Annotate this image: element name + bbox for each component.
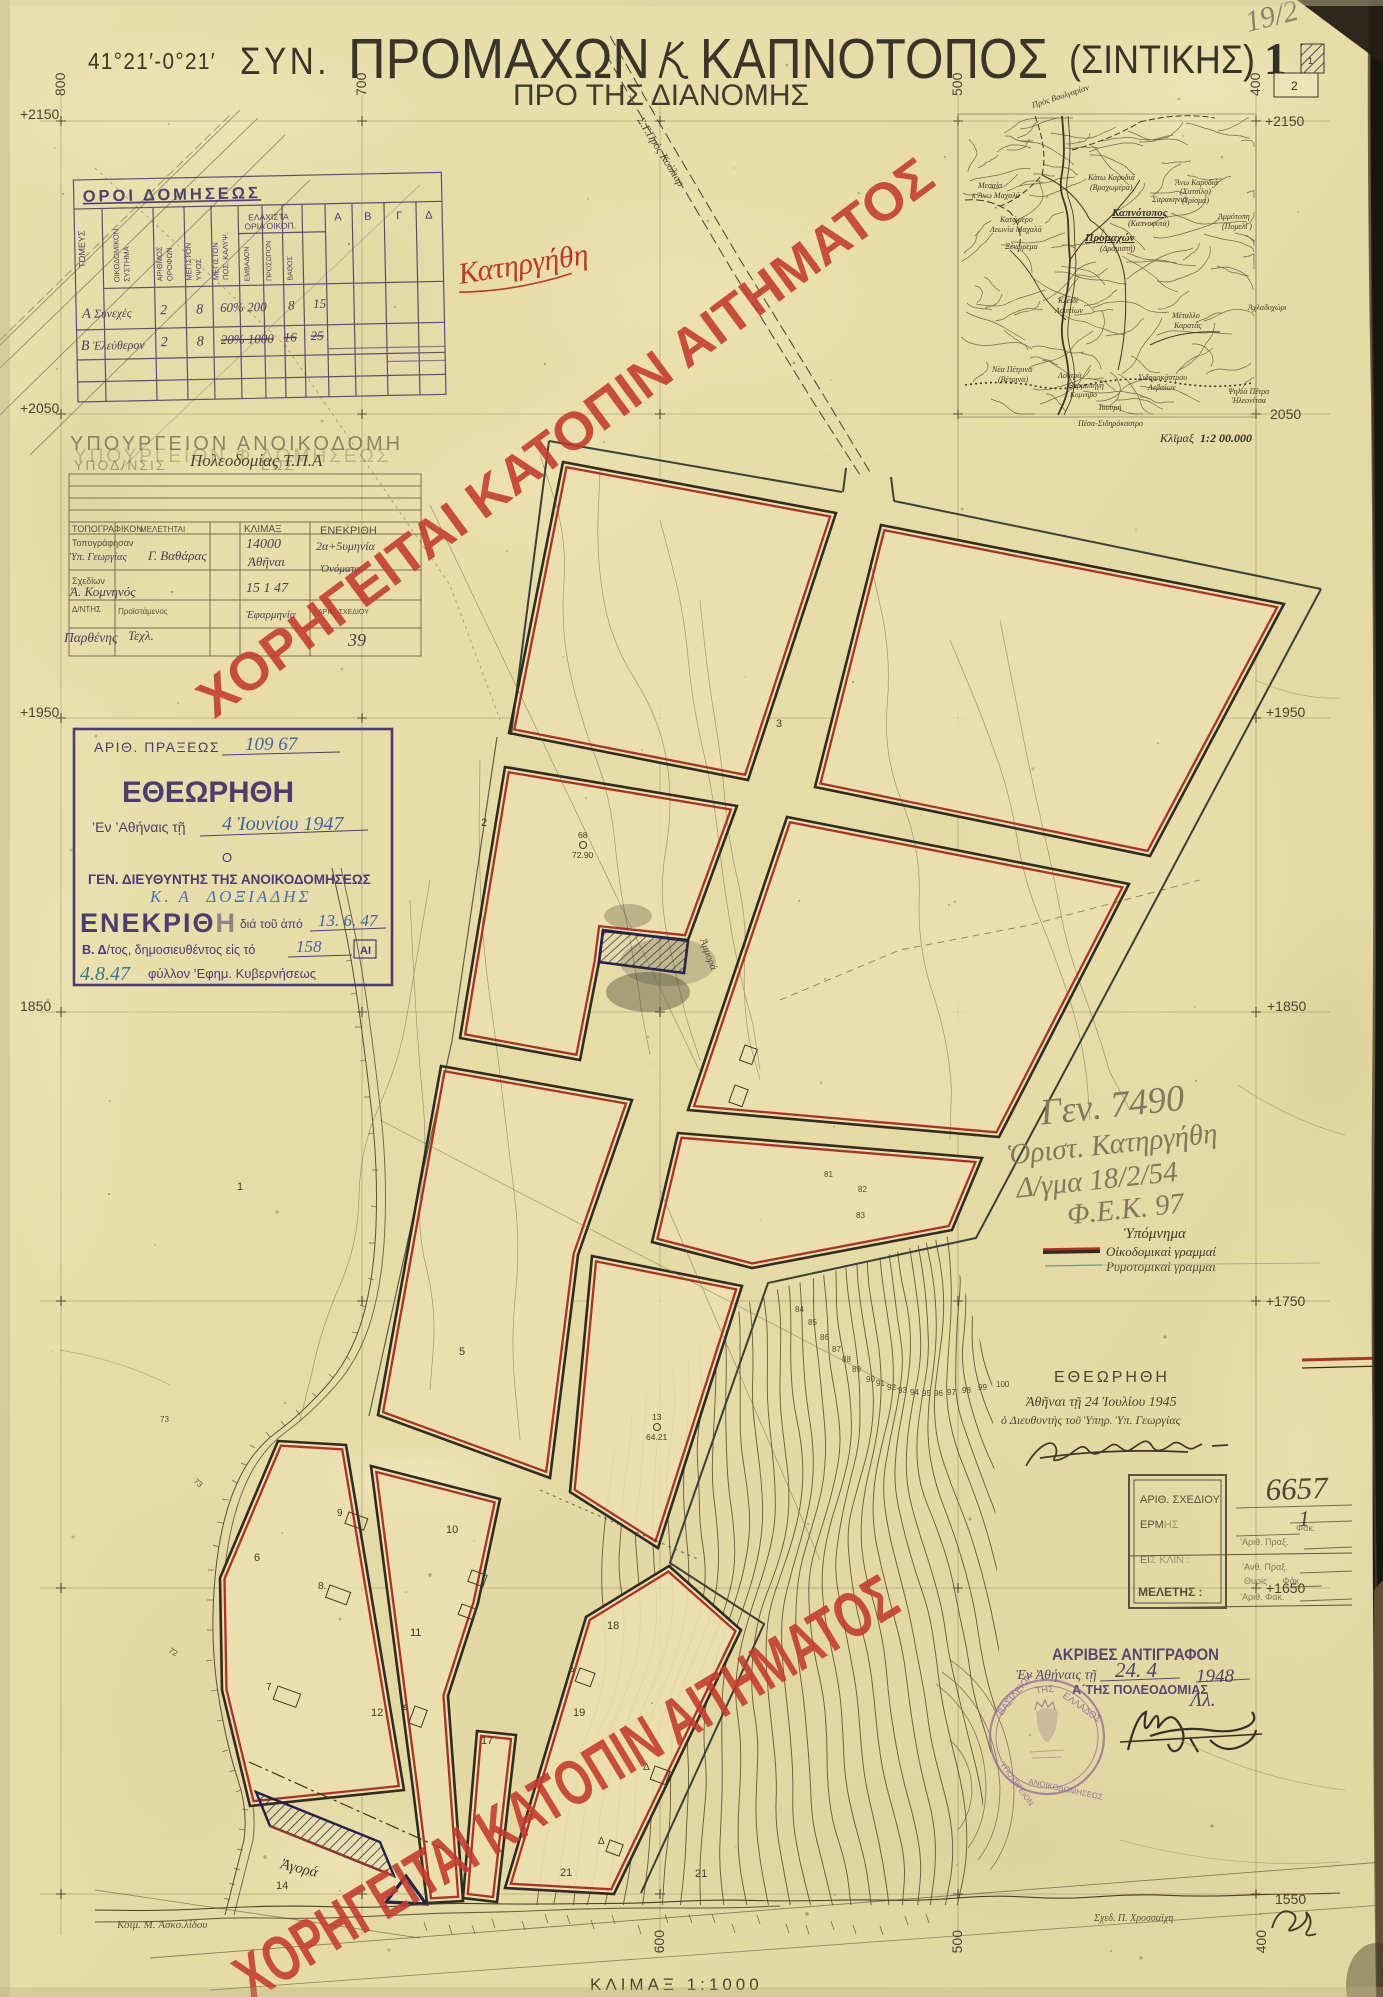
svg-text:21: 21: [695, 1868, 707, 1880]
svg-text:Μεσαία: Μεσαία: [977, 181, 1003, 190]
svg-text:98: 98: [962, 1386, 971, 1395]
svg-text:Δ/ΝΤΗΣ: Δ/ΝΤΗΣ: [72, 605, 101, 614]
svg-text:87: 87: [832, 1345, 841, 1354]
svg-text:Ρυμοτομικαὶ γραμμαι: Ρυμοτομικαὶ γραμμαι: [1105, 1259, 1216, 1274]
svg-text:ΑʹΤΗΣ ΠΟΛΕΟΔΟΜΙΑΣ: ΑʹΤΗΣ ΠΟΛΕΟΔΟΜΙΑΣ: [1072, 1682, 1208, 1697]
svg-text:ΕΜΒΑΔΟΝ: ΕΜΒΑΔΟΝ: [244, 246, 252, 281]
svg-text:ΠΡΟ ΤΗΣ ΔΙΑΝΟΜΗΣ: ΠΡΟ ΤΗΣ ΔΙΑΝΟΜΗΣ: [513, 79, 809, 112]
svg-text:Σιδηροκάστρου: Σιδηροκάστρου: [1137, 373, 1187, 382]
svg-text:Β: Β: [364, 211, 372, 223]
svg-text:Προϊστάμενος: Προϊστάμενος: [118, 607, 168, 616]
svg-text:ΕΘΕΩΡΗΘΗ: ΕΘΕΩΡΗΘΗ: [122, 776, 294, 809]
svg-text:6657: 6657: [1265, 1470, 1330, 1507]
svg-text:Μέταλλο: Μέταλλο: [1171, 311, 1200, 320]
svg-text:Α: Α: [334, 211, 342, 223]
svg-text:41°21′-0°21′: 41°21′-0°21′: [88, 48, 216, 74]
svg-text:ΜΕΛΕΤΗΣ :: ΜΕΛΕΤΗΣ :: [1138, 1585, 1203, 1599]
svg-text:Θερμοπηγή: Θερμοπηγή: [1068, 381, 1104, 390]
svg-text:97: 97: [947, 1388, 956, 1397]
svg-text:9: 9: [337, 1508, 343, 1519]
svg-text:100: 100: [996, 1380, 1010, 1389]
svg-text:2: 2: [1291, 79, 1298, 93]
svg-text:’Αριθ. Πραξ.: ’Αριθ. Πραξ.: [1240, 1537, 1288, 1547]
svg-text:20% 1000: 20% 1000: [221, 331, 275, 347]
svg-text:1: 1: [1308, 56, 1313, 66]
svg-text:Σχεδ. Π. Χροσσαϊχη: Σχεδ. Π. Χροσσαϊχη: [1093, 1913, 1173, 1924]
svg-text:96: 96: [934, 1389, 943, 1398]
svg-text:ΕΝΕΚΡΙΘΗ: ΕΝΕΚΡΙΘΗ: [320, 525, 377, 537]
svg-text:Λουπίων: Λουπίων: [1054, 306, 1083, 315]
svg-text:Σαρακηνιά: Σαρακηνιά: [1151, 195, 1188, 204]
svg-text:17: 17: [481, 1735, 493, 1747]
svg-text:ΣΥΣΤΗΜΑ: ΣΥΣΤΗΜΑ: [122, 246, 132, 282]
svg-text:(Βέτρινα): (Βέτρινα): [998, 375, 1028, 384]
svg-text:Δ: Δ: [598, 1836, 605, 1847]
svg-text:Πολεοδομίας Τ.Π.Α: Πολεοδομίας Τ.Π.Α: [189, 451, 323, 470]
svg-text:ΕΡΜΗΣ: ΕΡΜΗΣ: [1140, 1519, 1179, 1531]
svg-text:+2150: +2150: [20, 106, 60, 122]
svg-text:’Ανθ. Πραξ.: ’Ανθ. Πραξ.: [1242, 1562, 1288, 1572]
svg-text:Καρατάς: Καρατάς: [1173, 321, 1202, 330]
svg-text:+1950: +1950: [1266, 704, 1306, 720]
svg-text:Ἠλεονίτσα: Ἠλεονίτσα: [1232, 396, 1267, 405]
svg-text:ΟΙΚΟΔΟΜΙΚΟΝ: ΟΙΚΟΔΟΜΙΚΟΝ: [111, 229, 121, 283]
svg-text:Θυρίς Φάκ.: Θυρίς Φάκ.: [1244, 1576, 1302, 1586]
svg-text:14: 14: [276, 1880, 288, 1892]
svg-text:ΑΙ: ΑΙ: [360, 945, 371, 957]
svg-text:(Δραμιστή): (Δραμιστή): [1100, 244, 1135, 253]
svg-text:2: 2: [160, 303, 167, 318]
svg-text:73: 73: [160, 1415, 169, 1424]
svg-text:68: 68: [578, 830, 588, 840]
svg-text:Ἀχλαδοχώρι: Ἀχλαδοχώρι: [1247, 303, 1287, 312]
svg-text:10: 10: [446, 1524, 458, 1536]
svg-text:Πέσα-Σιδηρόκαστρο: Πέσα-Σιδηρόκαστρο: [1077, 419, 1143, 428]
svg-text:Κ. Α ΔΟΞΙΑΔΗΣ: Κ. Α ΔΟΞΙΑΔΗΣ: [149, 887, 312, 906]
svg-text:14000: 14000: [246, 537, 281, 552]
svg-text:8: 8: [197, 334, 204, 349]
svg-text:800: 800: [52, 72, 68, 96]
svg-text:ΜΕΛΕΤΗΤΑΙ: ΜΕΛΕΤΗΤΑΙ: [140, 525, 185, 534]
svg-text:Ἀθῆναι: Ἀθῆναι: [247, 554, 285, 569]
svg-text:(Πομελί ): (Πομελί ): [1222, 222, 1252, 231]
svg-text:Κοιμ. Μ. Ἀσκο.λίδου: Κοιμ. Μ. Ἀσκο.λίδου: [116, 1919, 207, 1931]
svg-text:Ὑπόμνημα: Ὑπόμνημα: [1124, 1226, 1187, 1242]
svg-text:Δ: Δ: [568, 1664, 575, 1675]
svg-text:1550: 1550: [1275, 1891, 1306, 1907]
svg-text:Τοπογράφησαν: Τοπογράφησαν: [72, 538, 134, 548]
svg-text:64.21: 64.21: [646, 1432, 668, 1442]
svg-text:ΠΡΟΣΩΠΟΝ: ΠΡΟΣΩΠΟΝ: [266, 241, 274, 281]
svg-text:Ἄνω Καρυδιά: Ἄνω Καρυδιά: [1174, 178, 1219, 187]
svg-text:ΟΡΟΙ ΔΟΜΗΣΕΩΣ: ΟΡΟΙ ΔΟΜΗΣΕΩΣ: [83, 184, 262, 206]
svg-text:Τσουμή: Τσουμή: [1098, 403, 1121, 412]
svg-text:Λεωνία Μαχαλᾶ: Λεωνία Μαχαλᾶ: [989, 225, 1042, 234]
svg-text:Ἀθῆναι τῇ 24 Ἰουλίου 1945: Ἀθῆναι τῇ 24 Ἰουλίου 1945: [1025, 1395, 1177, 1410]
svg-text:Λλ.: Λλ.: [1188, 1689, 1216, 1711]
svg-text:8: 8: [288, 297, 295, 312]
svg-text:Τεχλ.: Τεχλ.: [128, 628, 154, 643]
svg-text:Παρθένης: Παρθένης: [63, 630, 118, 645]
svg-text:13: 13: [652, 1412, 662, 1422]
svg-text:Νέα Πέτρινα: Νέα Πέτρινα: [991, 365, 1033, 374]
svg-text:400: 400: [1253, 1930, 1269, 1954]
svg-text:Οἰκοδομικαὶ γραμμαί: Οἰκοδομικαὶ γραμμαί: [1106, 1244, 1216, 1259]
svg-text:Κομνηβο: Κομνηβο: [1069, 390, 1097, 399]
svg-text:Ξένωρεμα: Ξένωρεμα: [1005, 242, 1038, 251]
svg-text:ΥΨΟΣ: ΥΨΟΣ: [194, 258, 203, 280]
svg-text:95: 95: [922, 1389, 931, 1398]
svg-text:82: 82: [858, 1185, 867, 1194]
svg-text:ΕΘΕΩΡΗΘΗ: ΕΘΕΩΡΗΘΗ: [1054, 1369, 1170, 1386]
svg-text:15 1 47: 15 1 47: [246, 581, 289, 596]
svg-text:158: 158: [296, 937, 322, 956]
svg-text:Κατώμερο: Κατώμερο: [999, 215, 1033, 224]
svg-text:5: 5: [459, 1346, 465, 1358]
svg-text:+1750: +1750: [1266, 1293, 1306, 1309]
svg-text:Β. Δ/τος, δημοσιευθέντος εἰς τ: Β. Δ/τος, δημοσιευθέντος εἰς τό: [82, 943, 255, 957]
svg-text:+2150: +2150: [1265, 113, 1305, 129]
svg-text:ΚΛΙΜΑΞ: ΚΛΙΜΑΞ: [244, 524, 282, 535]
svg-text:Λουτρά: Λουτρά: [1057, 371, 1082, 380]
svg-text:18: 18: [607, 1620, 619, 1632]
svg-text:25: 25: [311, 328, 325, 343]
svg-text:Ἀ. Κομνηνός: Ἀ. Κομνηνός: [69, 584, 136, 599]
svg-text:ΣΥΝ.: ΣΥΝ.: [240, 41, 330, 83]
svg-text:Καπνότοπος: Καπνότοπος: [1111, 207, 1168, 219]
svg-text:16: 16: [284, 329, 298, 344]
svg-text:2: 2: [481, 817, 487, 829]
svg-text:ὁ Διευθυντὴς τοῦ Ὑπηρ. Ὑπ. Γεω: ὁ Διευθυντὴς τοῦ Ὑπηρ. Ὑπ. Γεωργίας: [1001, 1413, 1181, 1427]
svg-text:1948: 1948: [1196, 1666, 1235, 1687]
svg-text:109 67: 109 67: [245, 734, 299, 755]
svg-text:Ο: Ο: [222, 850, 232, 865]
svg-text:8: 8: [196, 302, 203, 317]
svg-text:ΓΕΝ. ΔΙΕΥΘΥΝΤΗΣ ΤΗΣ ΑΝΟΙΚΟΔΟΜΗ: ΓΕΝ. ΔΙΕΥΘΥΝΤΗΣ ΤΗΣ ΑΝΟΙΚΟΔΟΜΗΣΕΩΣ: [88, 872, 371, 887]
svg-text:Ἀμμότοπη: Ἀμμότοπη: [1217, 212, 1250, 221]
svg-text:6: 6: [254, 1552, 260, 1564]
svg-text:4 Ἰουνίου 1947: 4 Ἰουνίου 1947: [222, 813, 344, 835]
svg-text:Λεβαίων: Λεβαίων: [1147, 383, 1176, 392]
svg-text:ε: ε: [403, 1702, 408, 1713]
svg-text:19: 19: [573, 1707, 585, 1719]
svg-text:21: 21: [560, 1867, 572, 1879]
svg-text:(Καπνοφυτά): (Καπνοφυτά): [1128, 219, 1170, 228]
svg-text:ΜΕΓΙΣΤΟΝ: ΜΕΓΙΣΤΟΝ: [211, 242, 221, 280]
svg-text:4.8.47: 4.8.47: [80, 963, 131, 985]
svg-text:83: 83: [856, 1211, 865, 1220]
svg-text:ΑΡΙΘΜΟΣ: ΑΡΙΘΜΟΣ: [155, 246, 165, 281]
svg-text:93: 93: [898, 1386, 907, 1395]
svg-text:+2050: +2050: [20, 400, 60, 416]
svg-text:’Εν ’Αθήναις τῇ: ’Εν ’Αθήναις τῇ: [92, 819, 186, 835]
svg-text:ΤΟΠΟΓΡΑΦΙΚΟΝ: ΤΟΠΟΓΡΑΦΙΚΟΝ: [72, 524, 143, 534]
svg-text:1: 1: [1298, 1506, 1310, 1531]
svg-text:ΜΕΓΙΣΤΟΝ: ΜΕΓΙΣΤΟΝ: [184, 243, 194, 281]
svg-text:8.: 8.: [318, 1581, 326, 1592]
svg-text:15: 15: [313, 296, 327, 311]
svg-text:ΕΙΣ ΚΛΙΝ :: ΕΙΣ ΚΛΙΝ :: [1140, 1554, 1190, 1566]
svg-text:ΑΡΙΘ. ΠΡΑΞΕΩΣ: ΑΡΙΘ. ΠΡΑΞΕΩΣ: [94, 739, 220, 755]
svg-text:94: 94: [910, 1388, 919, 1397]
svg-text:Γ: Γ: [396, 210, 402, 222]
svg-text:+1950: +1950: [20, 704, 60, 720]
svg-text:84: 84: [795, 1305, 804, 1314]
svg-text:Ψηλιά Πέτρα: Ψηλιά Πέτρα: [1228, 387, 1270, 396]
svg-text:Ὑπ. Γεωργίας: Ὑπ. Γεωργίας: [70, 552, 128, 563]
svg-text:Α Συνεχές: Α Συνεχές: [81, 306, 132, 322]
svg-text:(Βραχωμέρα): (Βραχωμέρα): [1090, 183, 1133, 192]
svg-text:+1850: +1850: [1267, 998, 1307, 1014]
svg-text:3: 3: [776, 718, 782, 730]
svg-text:Β Ἐλεύθερον: Β Ἐλεύθερον: [81, 338, 146, 354]
svg-text:’Αριθ. Φακ.: ’Αριθ. Φακ.: [1240, 1592, 1285, 1602]
svg-text:7: 7: [266, 1682, 272, 1693]
svg-text:ΟΡΙΑ ΟΙΚΟΠ.: ΟΡΙΑ ΟΙΚΟΠ.: [244, 220, 296, 231]
svg-text:ΟΡΟΦΩΝ: ΟΡΟΦΩΝ: [165, 247, 175, 281]
svg-text:81: 81: [824, 1170, 833, 1179]
svg-text:Γ. Βαθάρας: Γ. Βαθάρας: [147, 548, 207, 563]
svg-text:Κλειδί: Κλειδί: [1057, 296, 1079, 305]
svg-text:24. 4: 24. 4: [1115, 1658, 1158, 1682]
svg-text:500: 500: [949, 1930, 965, 1954]
svg-text:11: 11: [410, 1627, 421, 1639]
svg-text:Κάτω Καρυδιά: Κάτω Καρυδιά: [1087, 173, 1136, 182]
svg-text:72.90: 72.90: [572, 850, 594, 860]
svg-text:Προμαχών: Προμαχών: [1084, 232, 1135, 244]
svg-text:Κλῖμαξ 1:2 00.000: Κλῖμαξ 1:2 00.000: [1159, 431, 1252, 445]
svg-text:99: 99: [978, 1383, 987, 1392]
svg-text:ΑΡΙΘ. ΣΧΕΔΙΟΥ: ΑΡΙΘ. ΣΧΕΔΙΟΥ: [1140, 1494, 1220, 1506]
svg-text:13. 6. 47: 13. 6. 47: [318, 911, 379, 930]
svg-text:60% 200: 60% 200: [220, 299, 267, 315]
svg-text:600: 600: [651, 1930, 667, 1954]
svg-text:ΕΝΕΚΡΙΘΗ: ΕΝΕΚΡΙΘΗ: [80, 908, 237, 938]
svg-text:1: 1: [237, 1181, 243, 1193]
svg-text:ΒΑΘΟΣ: ΒΑΘΟΣ: [287, 255, 295, 280]
svg-text:ΠΟΣ. ΚΑΛΥΨ.: ΠΟΣ. ΚΑΛΥΨ.: [221, 232, 231, 280]
svg-text:Δ: Δ: [425, 210, 433, 222]
svg-text:12: 12: [371, 1707, 383, 1719]
svg-text:86: 86: [820, 1333, 829, 1342]
svg-text:διά τοῦ ἀπό: διά τοῦ ἀπό: [240, 917, 303, 931]
svg-text:(ΣΙΝΤΙΚΗΣ): (ΣΙΝΤΙΚΗΣ): [1069, 38, 1255, 82]
svg-text:2: 2: [161, 335, 168, 350]
svg-text:κ Ἄνω Μαχαλᾶ: κ Ἄνω Μαχαλᾶ: [972, 191, 1021, 200]
svg-text:2050: 2050: [1270, 406, 1301, 422]
svg-text:φύλλον ’Εφημ. Κυβερνήσεως: φύλλον ’Εφημ. Κυβερνήσεως: [148, 966, 316, 981]
svg-text:ΤΟΜΕΥΣ: ΤΟΜΕΥΣ: [76, 230, 87, 268]
svg-text:85: 85: [808, 1318, 817, 1327]
